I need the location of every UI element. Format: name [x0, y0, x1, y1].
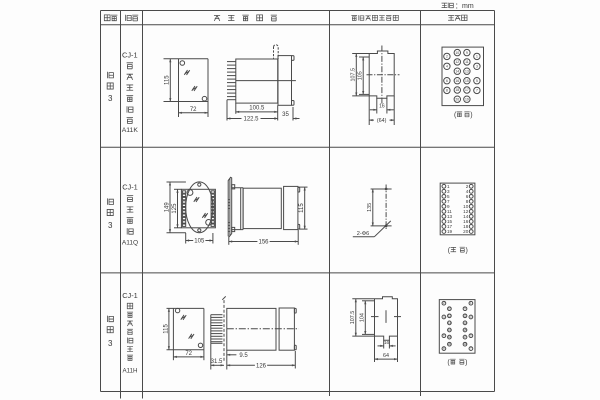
svg-text:19: 19 — [447, 229, 453, 234]
svg-text:115: 115 — [299, 203, 305, 213]
svg-text:6: 6 — [446, 79, 448, 83]
svg-text:(: ( — [448, 247, 451, 254]
svg-text:(: ( — [447, 359, 450, 366]
svg-text:): ) — [470, 112, 472, 119]
svg-text:2: 2 — [446, 55, 448, 59]
svg-text:105: 105 — [358, 71, 364, 80]
svg-text:72: 72 — [190, 107, 197, 113]
svg-text:5: 5 — [476, 79, 478, 83]
svg-text:3: 3 — [108, 221, 113, 230]
svg-text:CJ-1: CJ-1 — [122, 291, 138, 300]
svg-text:115: 115 — [165, 75, 171, 85]
svg-text:104: 104 — [360, 313, 366, 322]
svg-text:16: 16 — [384, 340, 390, 345]
svg-text:12: 12 — [455, 60, 459, 64]
svg-text:A11Q: A11Q — [122, 240, 138, 247]
svg-text:72: 72 — [185, 351, 192, 357]
svg-text:20: 20 — [463, 229, 469, 234]
svg-text:3: 3 — [108, 94, 113, 103]
svg-text:100.5: 100.5 — [249, 106, 265, 112]
svg-text:9.5: 9.5 — [239, 353, 248, 359]
svg-text:A11H: A11H — [122, 368, 137, 375]
svg-text:125: 125 — [172, 203, 178, 214]
svg-text:2-Φ6: 2-Φ6 — [357, 231, 370, 237]
svg-text:13: 13 — [465, 69, 469, 73]
svg-text:149: 149 — [164, 202, 170, 213]
svg-text:156: 156 — [258, 240, 269, 246]
svg-text:16: 16 — [455, 79, 459, 83]
svg-text:(: ( — [454, 112, 457, 119]
svg-text:15: 15 — [465, 79, 469, 83]
svg-text:CJ-1: CJ-1 — [122, 51, 138, 60]
svg-text:7: 7 — [476, 89, 478, 93]
svg-text:115: 115 — [163, 324, 169, 334]
svg-text:3: 3 — [476, 65, 478, 69]
svg-text:(64): (64) — [377, 118, 387, 124]
svg-text:105: 105 — [194, 239, 205, 245]
svg-text:135: 135 — [367, 203, 373, 212]
svg-text:31.5: 31.5 — [211, 359, 223, 365]
svg-text:1: 1 — [476, 55, 478, 59]
svg-text:3: 3 — [108, 339, 113, 348]
svg-text:16: 16 — [379, 104, 385, 110]
svg-text:A11K: A11K — [122, 127, 139, 134]
svg-text:122.5: 122.5 — [243, 117, 259, 123]
svg-text:): ) — [465, 359, 467, 366]
svg-text:11: 11 — [465, 60, 469, 64]
svg-text:CJ-1: CJ-1 — [122, 183, 138, 192]
svg-text:4: 4 — [446, 65, 448, 69]
svg-text:14: 14 — [455, 69, 459, 73]
svg-text:19: 19 — [465, 97, 469, 101]
svg-text:：mm: ：mm — [455, 3, 474, 10]
svg-text:64: 64 — [383, 353, 389, 359]
svg-text:20: 20 — [455, 97, 459, 101]
svg-text:8: 8 — [446, 89, 448, 93]
svg-text:9: 9 — [466, 51, 468, 55]
svg-text:): ) — [466, 247, 468, 254]
svg-text:18: 18 — [455, 88, 459, 92]
svg-text:126: 126 — [256, 363, 267, 369]
svg-text:107.5: 107.5 — [350, 311, 356, 325]
svg-text:35: 35 — [282, 112, 289, 118]
svg-text:10: 10 — [455, 51, 459, 55]
svg-text:107.5: 107.5 — [351, 68, 357, 82]
svg-text:17: 17 — [465, 88, 469, 92]
